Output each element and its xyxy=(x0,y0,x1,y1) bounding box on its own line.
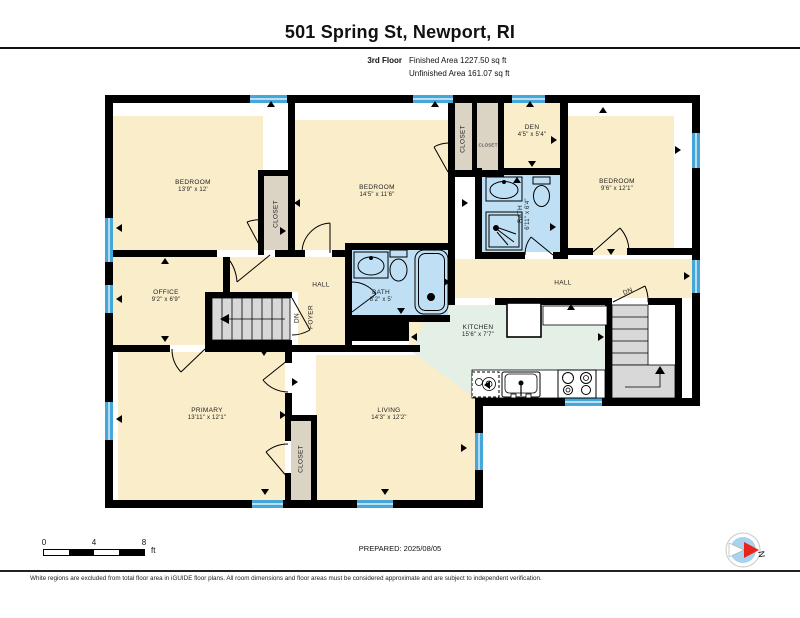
room-label-bath-main: BATH 8'2" x 5' xyxy=(370,289,393,304)
disclaimer-text: White regions are excluded from total fl… xyxy=(30,575,542,582)
room-label-hall-right: HALL xyxy=(554,279,571,287)
floorplan-drawing: N xyxy=(0,0,800,618)
room-label-primary: PRIMARY 13'11" x 12'1" xyxy=(188,407,227,422)
closet-label-1: CLOSET xyxy=(272,200,280,228)
stairs-down-label-left: DN xyxy=(293,313,301,323)
room-label-bedroom2: BEDROOM 14'5" x 11'6" xyxy=(359,184,395,199)
room-label-den: DEN 4'5" x 5'4" xyxy=(518,124,546,139)
footer-divider xyxy=(0,570,800,572)
prepared-date: PREPARED: 2025/08/05 xyxy=(0,544,800,553)
floorplan-page: { "header": { "title": "501 Spring St, N… xyxy=(0,0,800,618)
closet-label-4: CLOSET xyxy=(297,445,305,473)
closet-label-3: CLOSET xyxy=(479,141,498,149)
stairs-right xyxy=(612,305,675,398)
room-label-living: LIVING 14'3" x 12'2" xyxy=(371,407,407,422)
room-label-kitchen: KITCHEN 15'6" x 7'7" xyxy=(462,324,494,339)
room-label-office: OFFICE 9'2" x 6'9" xyxy=(152,289,180,304)
stairs-main xyxy=(212,298,290,340)
room-label-hall-left: HALL xyxy=(312,281,329,289)
closet-label-2: CLOSET xyxy=(459,125,467,153)
room-label-bedroom3: BEDROOM 9'6" x 12'1" xyxy=(599,178,635,193)
room-label-bath-second: BATH 6'11" x 6'4" xyxy=(517,198,532,230)
room-label-bedroom1: BEDROOM 13'9" x 12' xyxy=(175,179,211,194)
room-label-foyer: FOYER xyxy=(307,305,315,329)
